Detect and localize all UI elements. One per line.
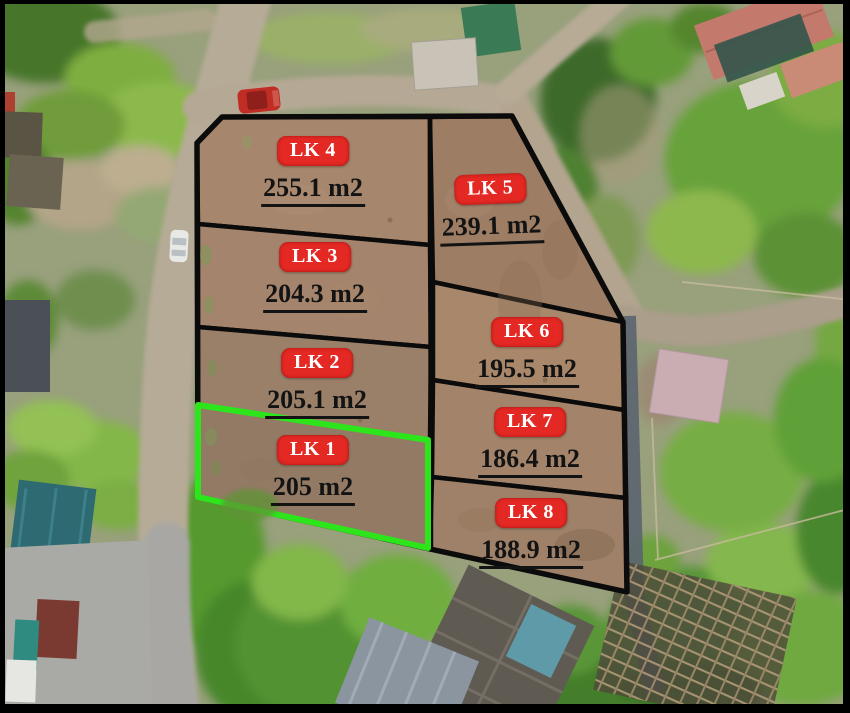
plot-badge-lk5[interactable]: LK 5 [454,173,527,205]
plot-badge-lk3[interactable]: LK 3 [279,242,351,272]
plot-badge-lk2[interactable]: LK 2 [281,348,353,378]
plot-area-lk4: 255.1 m2 [261,175,365,207]
plot-area-lk2: 205.1 m2 [265,387,369,419]
white-car [169,230,189,263]
plot-label-lk1: LK 1 205 m2 [271,435,355,506]
plot-area-lk3: 204.3 m2 [263,281,367,313]
plot-area-lk8: 188.9 m2 [479,537,583,569]
plot-label-lk6: LK 6 195.5 m2 [475,317,579,388]
dark-slate-house [0,300,50,392]
plot-label-lk7: LK 7 186.4 m2 [478,407,582,478]
plot-badge-lk1[interactable]: LK 1 [277,435,349,465]
gray-shed-roof [411,38,478,90]
plot-area-lk5: 239.1 m2 [439,211,544,247]
brown-roof-1 [0,111,43,158]
red-truck [35,599,80,659]
plot-label-lk5: LK 5 239.1 m2 [438,172,544,247]
plot-label-lk3: LK 3 204.3 m2 [263,242,367,313]
red-car [237,86,281,114]
plot-area-lk6: 195.5 m2 [475,356,579,388]
plot-label-lk8: LK 8 188.9 m2 [479,498,583,569]
aerial-photo [0,0,850,713]
white-van [5,659,36,702]
pink-roof-building [649,349,728,423]
plot-area-lk1: 205 m2 [271,474,355,506]
plot-badge-lk8[interactable]: LK 8 [495,498,567,528]
top-left-path [95,20,205,32]
plot-badge-lk6[interactable]: LK 6 [491,317,563,347]
plot-label-lk2: LK 2 205.1 m2 [265,348,369,419]
left-road-lower [167,545,176,713]
plot-badge-lk7[interactable]: LK 7 [494,407,566,437]
plot-area-lk7: 186.4 m2 [478,446,582,478]
tree-overlap [222,489,278,521]
aerial-land-plot-map: LK 4 255.1 m2 LK 5 239.1 m2 LK 3 204.3 m… [0,0,850,713]
plot-label-lk4: LK 4 255.1 m2 [261,136,365,207]
plot-badge-lk4[interactable]: LK 4 [277,136,349,166]
brown-roof-2 [6,154,63,210]
